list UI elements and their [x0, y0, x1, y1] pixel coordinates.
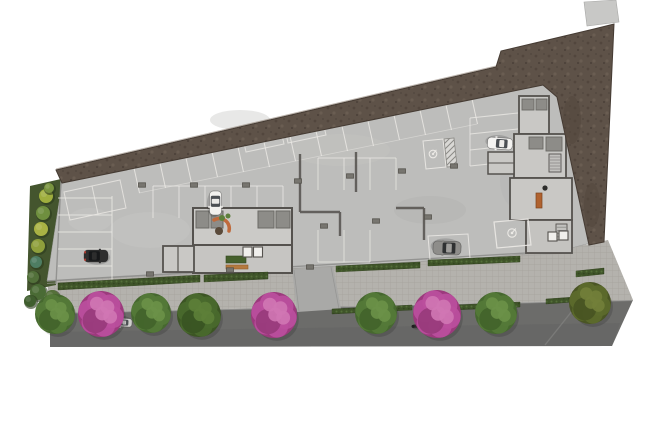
concrete-blotch [110, 212, 190, 248]
site-plan-rendering [0, 0, 648, 432]
planter-pot [215, 227, 223, 235]
tech-room [546, 137, 562, 151]
elevator [559, 231, 568, 240]
parked-scooter [542, 185, 547, 190]
elevator [243, 247, 252, 257]
storage-room [258, 211, 274, 228]
storage-room [196, 211, 209, 228]
tech-room [522, 99, 534, 110]
driveway-ramp [292, 266, 341, 312]
orange-door [536, 193, 542, 208]
parking-level-plan [0, 0, 648, 432]
parked-car-white-vertical [207, 191, 223, 217]
stairwell [549, 154, 561, 172]
parked-car-dark [84, 249, 110, 265]
elevator [254, 247, 263, 257]
earth-texture [563, 96, 581, 144]
concrete-blotch [394, 196, 466, 224]
tech-room [536, 99, 547, 110]
concrete-blotch [68, 208, 112, 232]
elevator [548, 232, 557, 241]
storage-room [276, 211, 290, 228]
earth-texture [584, 183, 600, 227]
tech-room [529, 137, 543, 149]
neighbor-slab [584, 0, 619, 26]
